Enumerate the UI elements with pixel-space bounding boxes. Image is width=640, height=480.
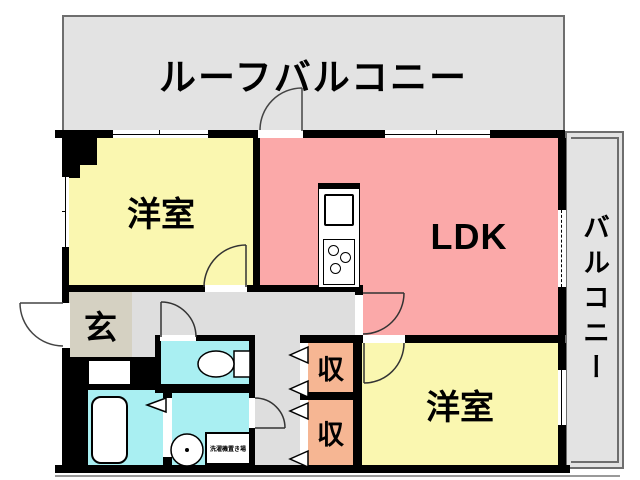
hallway-area <box>255 335 300 465</box>
door-opening <box>62 303 70 348</box>
wall <box>62 390 88 473</box>
shoe-cabinet <box>89 361 130 384</box>
sliding-door-window <box>558 210 566 287</box>
floor-plan: ルーフバルコニー バルコニー 洋室 LDK 玄 収 収 洋室 <box>0 0 640 480</box>
bedroom-top-label: 洋室 <box>127 187 195 236</box>
roof-balcony-label: ルーフバルコニー <box>159 47 468 101</box>
door-arc <box>20 303 63 346</box>
window <box>558 370 566 425</box>
entrance-area: 玄 <box>69 292 132 357</box>
wall <box>300 392 360 400</box>
storage-top-label: 収 <box>317 348 344 387</box>
balcony-label: バルコニー <box>575 213 614 388</box>
kitchen-stove-icon <box>323 239 355 285</box>
ground-line <box>55 475 620 477</box>
kitchen-counter <box>318 183 360 288</box>
closet-door-face <box>300 400 308 465</box>
closet-door-face <box>300 343 308 392</box>
window <box>113 130 208 138</box>
door-opening <box>258 130 303 138</box>
bedroom-bottom-area: 洋室 <box>362 343 558 465</box>
window <box>62 177 69 247</box>
wall <box>253 130 260 292</box>
bathtub <box>91 396 128 464</box>
door-opening <box>205 285 247 292</box>
storage-top-area: 収 <box>308 343 353 392</box>
wall <box>62 131 80 178</box>
roof-balcony-area: ルーフバルコニー <box>62 15 565 133</box>
hallway-area <box>132 292 355 335</box>
door-opening <box>160 335 196 341</box>
wall <box>353 343 362 465</box>
bedroom-bottom-label: 洋室 <box>426 380 494 429</box>
toilet-room-area <box>161 341 249 384</box>
entrance-label: 玄 <box>84 301 117 349</box>
bathroom-door-panel <box>163 398 172 457</box>
door-opening <box>363 335 405 343</box>
laundry-label: 洗濯機置き場 <box>210 444 246 453</box>
laundry-space-box: 洗濯機置き場 <box>205 432 251 465</box>
hallway-area <box>132 335 155 357</box>
wall <box>300 335 565 343</box>
wall <box>55 465 570 473</box>
balcony-area: バルコニー <box>565 131 624 469</box>
storage-bottom-area: 収 <box>308 400 353 465</box>
door-opening <box>355 295 363 335</box>
ldk-label: LDK <box>431 216 508 258</box>
door-opening <box>249 398 255 428</box>
kitchen-sink-icon <box>324 194 354 226</box>
window <box>385 130 490 138</box>
storage-bottom-label: 収 <box>317 413 344 452</box>
